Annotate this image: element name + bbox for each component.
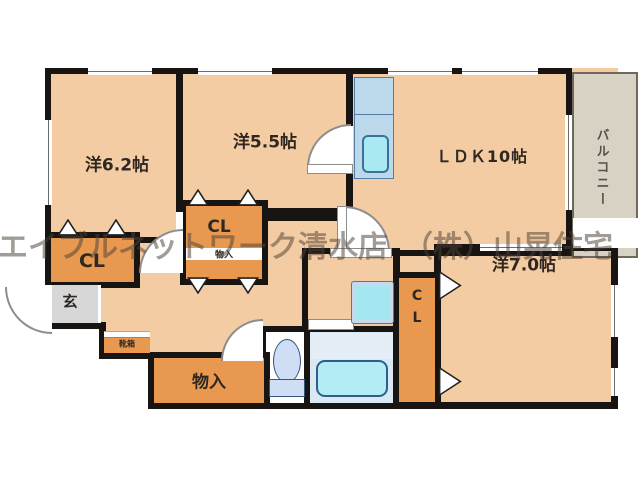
closet-door-triangle xyxy=(436,271,464,300)
window xyxy=(45,120,52,205)
balcony-label: バルコニー xyxy=(592,128,611,208)
storage-bottom-label: 物入 xyxy=(192,368,226,393)
bathtub xyxy=(316,360,388,397)
balcony-window xyxy=(565,115,572,210)
wall xyxy=(45,322,105,329)
closet-right-label: CL xyxy=(409,288,425,332)
window xyxy=(611,285,618,337)
entrance-door-arc xyxy=(5,287,52,334)
window xyxy=(611,368,618,396)
window xyxy=(88,68,152,75)
closet-door-triangle xyxy=(236,277,260,294)
kitchen-sink xyxy=(362,135,389,173)
sliding-door xyxy=(308,319,354,330)
entrance-label: 玄 xyxy=(62,291,77,312)
bathroom-floor-upper xyxy=(311,333,393,359)
closet-door-triangle xyxy=(186,277,210,294)
closet-door-triangle xyxy=(436,367,464,396)
window xyxy=(462,68,538,75)
counter-divider xyxy=(355,114,393,115)
shoe-cabinet-top xyxy=(104,332,150,338)
toilet-bowl xyxy=(273,339,301,383)
closet-door-triangle xyxy=(236,189,260,206)
wall xyxy=(99,352,155,359)
shoe-cabinet-label: 靴箱 xyxy=(119,339,135,350)
room-label-western62: 洋6.2帖 xyxy=(85,151,149,176)
watermark-text: エイブルネットワーク清水店 （株）山晃住宅 xyxy=(0,222,613,266)
exterior-patch xyxy=(99,359,148,480)
exterior-patch xyxy=(0,329,99,480)
washer-pan xyxy=(352,282,393,323)
toilet-tank xyxy=(269,379,305,397)
room-label-western55: 洋5.5帖 xyxy=(233,128,297,153)
window xyxy=(388,68,452,75)
room-label-ldk: ＬＤＫ10帖 xyxy=(436,143,528,167)
window xyxy=(198,68,272,75)
closet-door-triangle xyxy=(186,189,210,206)
entrance-step xyxy=(98,285,101,323)
floorplan-canvas: 洋6.2帖 洋5.5帖 ＬＤＫ10帖 洋7.0帖 バルコニー CL CL 物入 … xyxy=(0,0,640,480)
door-panel xyxy=(307,164,353,174)
